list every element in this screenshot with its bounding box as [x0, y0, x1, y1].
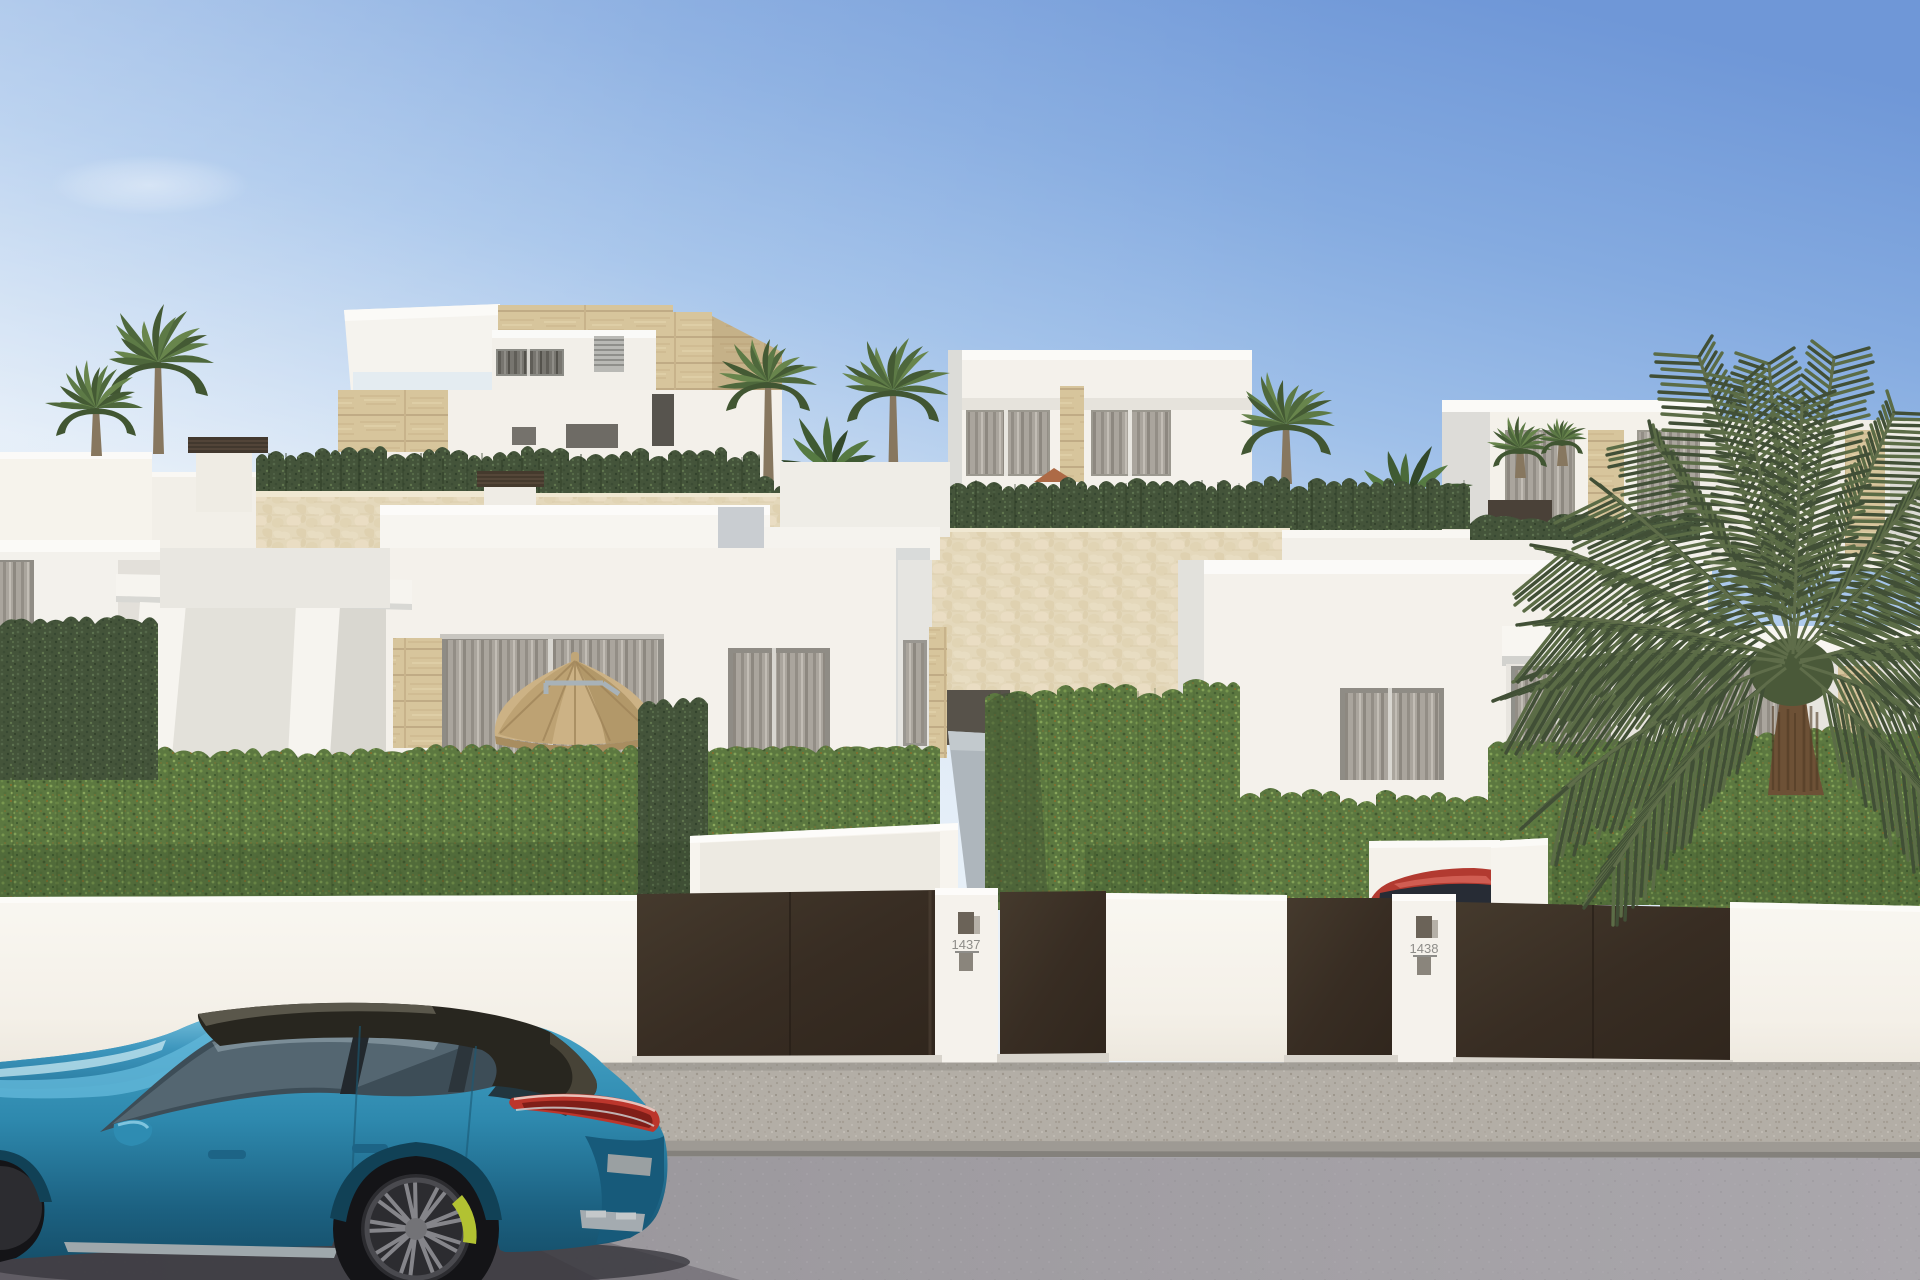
- svg-text:1437: 1437: [952, 937, 981, 952]
- svg-text:1438: 1438: [1410, 941, 1439, 956]
